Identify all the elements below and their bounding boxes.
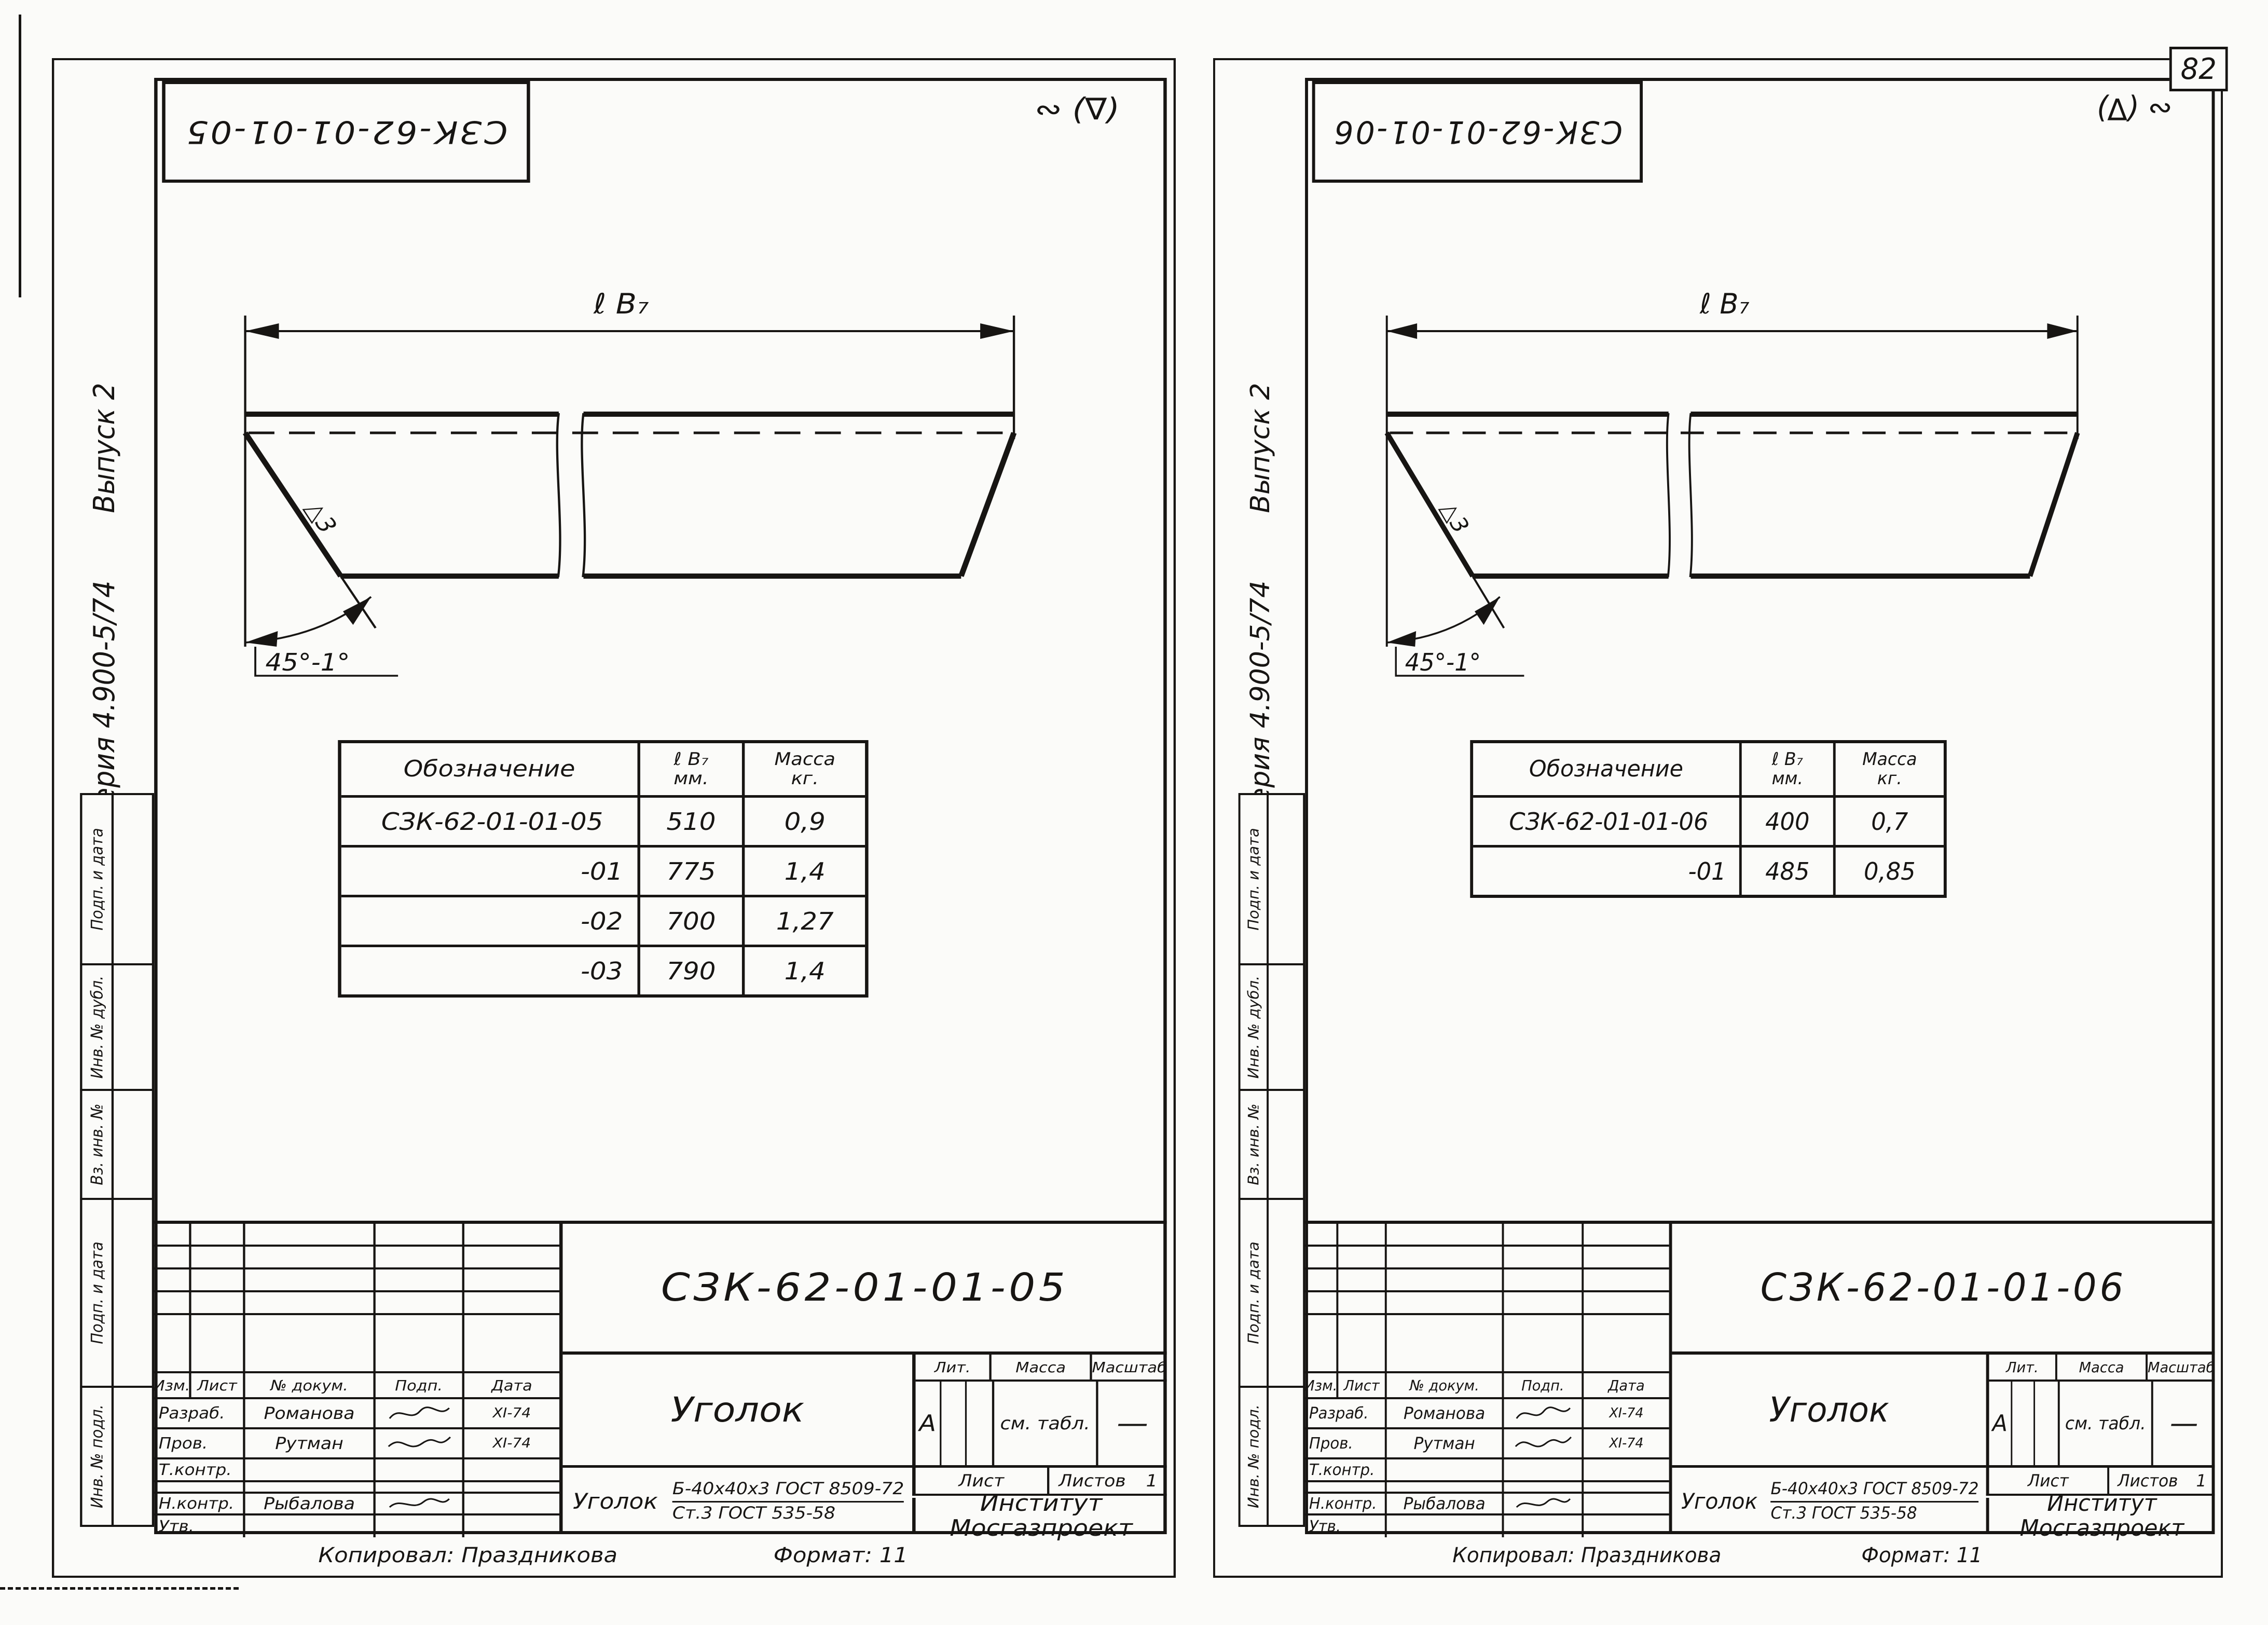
scale-value: — xyxy=(1098,1382,1167,1465)
revision-signature-table: Изм. Лист № докум. Подп. Дата Разраб. Ро… xyxy=(154,1224,562,1534)
series-label: Серия 4.900-5/74 Выпуск 2 xyxy=(1245,383,1275,823)
break-line xyxy=(1667,413,1670,577)
document-number: СЗК-62-01-01-06 xyxy=(1672,1224,2215,1355)
margin-cell: Инв. № дубл. xyxy=(1239,963,1305,1091)
lit-cell-empty xyxy=(2035,1382,2057,1465)
scale-value: — xyxy=(2153,1382,2215,1465)
lit-mass-scale-block: Лит. Масса Масштаб А см. табл. — xyxy=(1986,1355,2215,1468)
change-row xyxy=(154,1315,559,1373)
spacer-row xyxy=(1305,1482,1669,1494)
series-label: Серия 4.900-5/74 Выпуск 2 xyxy=(88,383,121,823)
signature-mark xyxy=(1504,1429,1584,1457)
arrowhead xyxy=(1387,323,1417,339)
table-row: -01 775 1,4 xyxy=(341,845,865,895)
issue-text: Выпуск 2 xyxy=(88,383,121,513)
bevel-edge xyxy=(961,433,1014,576)
col-header-length: ℓ B₇ мм. xyxy=(640,743,745,795)
change-row xyxy=(1305,1315,1669,1373)
table-row: -01 485 0,85 xyxy=(1473,845,1944,895)
lit-label: Лит. xyxy=(916,1355,992,1380)
lit-value: А xyxy=(916,1382,941,1465)
margin-cell: Вз. инв. № xyxy=(1239,1089,1305,1200)
format-label: Формат: 11 xyxy=(774,1544,908,1567)
sheets-label: Листов xyxy=(2118,1471,2178,1491)
material-steel: Ст.3 ГОСТ 535-58 xyxy=(672,1503,904,1524)
margin-label: Подп. и дата xyxy=(1245,1241,1262,1344)
margin-label: Инв. № подл. xyxy=(87,1404,106,1508)
title-block: Изм. Лист № докум. Подп. Дата Разраб. Ро… xyxy=(1305,1221,2215,1534)
margin-empty-cell xyxy=(1269,1388,1303,1525)
arrowhead xyxy=(245,631,278,647)
change-row xyxy=(1305,1247,1669,1269)
series-text: Серия 4.900-5/74 xyxy=(88,581,121,823)
lit-cell-empty xyxy=(967,1382,992,1465)
material-spec: Б-40х40х3 ГОСТ 8509-72 xyxy=(1770,1478,1978,1503)
lit-mass-scale-block: Лит. Масса Масштаб А см. табл. — xyxy=(912,1355,1167,1468)
margin-cell: Подп. и дата xyxy=(1239,1198,1305,1388)
bevel-extension xyxy=(341,576,376,628)
corner-stamp: СЗК-62-01-01-05 xyxy=(162,81,530,183)
signature-row: Н.контр. Рыбалова xyxy=(1305,1494,1669,1515)
signature-row: Т.контр. xyxy=(1305,1459,1669,1482)
arrowhead xyxy=(245,323,279,339)
table-row: СЗК-62-01-01-05 510 0,9 xyxy=(341,795,865,845)
lit-cell-empty xyxy=(2012,1382,2035,1465)
drawing-sheet-06: 82 СЗК-62-01-01-06 ∾ (∇) Серия 4.900-5/7… xyxy=(1213,58,2223,1578)
page-number: 82 xyxy=(2169,47,2228,91)
drawing-sheet-05: СЗК-62-01-01-05 ∾ (∇) Серия 4.900-5/74 В… xyxy=(52,58,1176,1578)
margin-empty-cell xyxy=(1269,965,1303,1089)
organization: Институт Мосгазпроект xyxy=(1986,1498,2215,1534)
corner-stamp-number: СЗК-62-01-01-05 xyxy=(185,114,508,150)
part-name: Уголок xyxy=(562,1355,912,1468)
surface-finish-mark: ∾ (∇) xyxy=(1035,91,1120,127)
mass-value: см. табл. xyxy=(994,1382,1098,1465)
scanned-page: СЗК-62-01-01-05 ∾ (∇) Серия 4.900-5/74 В… xyxy=(0,0,2268,1625)
signature-row: Разраб. Романова XI-74 xyxy=(154,1399,559,1429)
table-row: -02 700 1,27 xyxy=(341,895,865,945)
change-row xyxy=(154,1224,559,1247)
change-row xyxy=(154,1247,559,1269)
sheets-count: 1 xyxy=(1146,1471,1158,1491)
margin-label: Вз. инв. № xyxy=(87,1103,106,1185)
margin-label: Инв. № дубл. xyxy=(1245,976,1262,1078)
col-header-length: ℓ B₇ мм. xyxy=(1742,743,1836,795)
margin-label: Подп. и дата xyxy=(87,1241,106,1344)
series-text: Серия 4.900-5/74 xyxy=(1245,581,1275,823)
signature-row: Разраб. Романова XI-74 xyxy=(1305,1399,1669,1429)
material-part-name: Уголок xyxy=(573,1489,658,1514)
margin-cell: Инв. № подл. xyxy=(1239,1386,1305,1527)
material-cell: Уголок Б-40х40х3 ГОСТ 8509-72 Ст.3 ГОСТ … xyxy=(562,1468,912,1534)
mass-label: Масса xyxy=(2057,1355,2148,1380)
scale-label: Масштаб xyxy=(1092,1355,1167,1380)
arrowhead xyxy=(980,323,1014,339)
signature-row: Н.контр. Рыбалова xyxy=(154,1494,559,1515)
break-line xyxy=(1689,413,1692,577)
scale-label: Масштаб xyxy=(2148,1355,2215,1380)
sheets-count: 1 xyxy=(2196,1471,2207,1491)
scan-artifact xyxy=(19,15,21,297)
margin-empty-cell xyxy=(114,795,152,963)
margin-empty-cell xyxy=(114,1091,152,1198)
organization: Институт Мосгазпроект xyxy=(912,1498,1167,1534)
margin-empty-cell xyxy=(1269,795,1303,963)
margin-label: Инв. № подл. xyxy=(1245,1404,1262,1508)
material-spec: Б-40х40х3 ГОСТ 8509-72 xyxy=(672,1478,904,1503)
margin-cell: Подп. и дата xyxy=(80,1198,154,1388)
dim-label: ℓ B₇ xyxy=(593,288,649,320)
part-drawing: ℓ B₇ △3 45°-1° xyxy=(223,283,1066,683)
margin-empty-cell xyxy=(114,965,152,1089)
issue-text: Выпуск 2 xyxy=(1245,383,1275,513)
revision-signature-table: Изм. Лист № докум. Подп. Дата Разраб. Ро… xyxy=(1305,1224,1672,1534)
margin-cell: Инв. № дубл. xyxy=(80,963,154,1091)
weld-label: △3 xyxy=(1436,497,1474,538)
mass-label: Масса xyxy=(992,1355,1092,1380)
signature-row: Пров. Рутман XI-74 xyxy=(154,1429,559,1459)
signature-row: Утв. xyxy=(154,1515,559,1537)
margin-label-column: Подп. и дата Инв. № дубл. Вз. инв. № Под… xyxy=(80,793,154,1527)
change-row xyxy=(1305,1224,1669,1247)
col-header-designation: Обозначение xyxy=(341,743,640,795)
lit-value: А xyxy=(1989,1382,2012,1465)
margin-empty-cell xyxy=(1269,1091,1303,1198)
change-row xyxy=(154,1269,559,1292)
material-steel: Ст.3 ГОСТ 535-58 xyxy=(1770,1503,1978,1524)
angle-label: 45°-1° xyxy=(266,649,350,677)
material-cell: Уголок Б-40х40х3 ГОСТ 8509-72 Ст.3 ГОСТ … xyxy=(1672,1468,1986,1534)
corner-stamp: СЗК-62-01-01-06 xyxy=(1312,81,1643,183)
copied-by: Копировал: Праздникова xyxy=(1452,1544,1721,1567)
corner-stamp-number: СЗК-62-01-01-06 xyxy=(1332,114,1623,150)
part-drawing: ℓ B₇ △3 45°-1° xyxy=(1367,283,2124,683)
signature-mark xyxy=(1504,1399,1584,1427)
table-row: -03 790 1,4 xyxy=(341,945,865,994)
material-part-name: Уголок xyxy=(1681,1489,1757,1514)
surface-finish-mark: ∾ (∇) xyxy=(2096,91,2173,127)
break-line xyxy=(582,413,585,577)
break-line xyxy=(557,413,560,577)
table-header-row: Обозначение ℓ B₇ мм. Масса кг. xyxy=(341,743,865,795)
margin-label: Подп. и дата xyxy=(1245,828,1262,931)
format-label: Формат: 11 xyxy=(1861,1544,1982,1567)
col-header-designation: Обозначение xyxy=(1473,743,1742,795)
document-number: СЗК-62-01-01-05 xyxy=(562,1224,1166,1355)
lit-label: Лит. xyxy=(1989,1355,2058,1380)
spacer-row xyxy=(154,1482,559,1494)
change-row xyxy=(1305,1269,1669,1292)
bevel-edge xyxy=(2030,433,2077,576)
weld-label: △3 xyxy=(300,497,343,538)
signature-mark xyxy=(1504,1494,1584,1513)
bevel-extension xyxy=(1473,576,1504,628)
sheets-label: Листов xyxy=(1059,1471,1125,1491)
angle-label: 45°-1° xyxy=(1405,648,1481,676)
margin-empty-cell xyxy=(114,1388,152,1525)
margin-label-column: Подп. и дата Инв. № дубл. Вз. инв. № Под… xyxy=(1239,793,1305,1527)
signature-mark xyxy=(376,1399,464,1427)
dim-label: ℓ B₇ xyxy=(1699,288,1749,320)
table-header-row: Обозначение ℓ B₇ мм. Масса кг. xyxy=(1473,743,1944,795)
margin-empty-cell xyxy=(1269,1200,1303,1386)
arrowhead xyxy=(2047,323,2077,339)
margin-empty-cell xyxy=(114,1200,152,1386)
revision-header-row: Изм. Лист № докум. Подп. Дата xyxy=(154,1373,559,1399)
margin-cell: Подп. и дата xyxy=(80,793,154,965)
arrowhead xyxy=(1387,631,1416,647)
change-row xyxy=(1305,1292,1669,1315)
copied-by: Копировал: Праздникова xyxy=(318,1544,617,1567)
signature-mark xyxy=(376,1429,464,1457)
dimension-table: Обозначение ℓ B₇ мм. Масса кг. СЗК-62-01… xyxy=(1470,740,1947,898)
lit-cell-empty xyxy=(941,1382,967,1465)
col-header-mass: Масса кг. xyxy=(745,743,865,795)
margin-cell: Подп. и дата xyxy=(1239,793,1305,965)
signature-row: Т.контр. xyxy=(154,1459,559,1482)
change-row xyxy=(154,1292,559,1315)
signature-mark xyxy=(376,1494,464,1513)
table-row: СЗК-62-01-01-06 400 0,7 xyxy=(1473,795,1944,845)
part-name: Уголок xyxy=(1672,1355,1986,1468)
margin-label: Вз. инв. № xyxy=(1245,1103,1262,1185)
margin-cell: Инв. № подл. xyxy=(80,1386,154,1527)
signature-row: Утв. xyxy=(1305,1515,1669,1537)
col-header-mass: Масса кг. xyxy=(1836,743,1944,795)
mass-value: см. табл. xyxy=(2060,1382,2153,1465)
margin-label: Инв. № дубл. xyxy=(87,976,106,1078)
margin-cell: Вз. инв. № xyxy=(80,1089,154,1200)
title-block: Изм. Лист № докум. Подп. Дата Разраб. Ро… xyxy=(154,1221,1167,1534)
scan-artifact xyxy=(0,1587,239,1590)
margin-label: Подп. и дата xyxy=(87,828,106,931)
revision-header-row: Изм. Лист № докум. Подп. Дата xyxy=(1305,1373,1669,1399)
signature-row: Пров. Рутман XI-74 xyxy=(1305,1429,1669,1459)
dimension-table: Обозначение ℓ B₇ мм. Масса кг. СЗК-62-01… xyxy=(338,740,868,998)
